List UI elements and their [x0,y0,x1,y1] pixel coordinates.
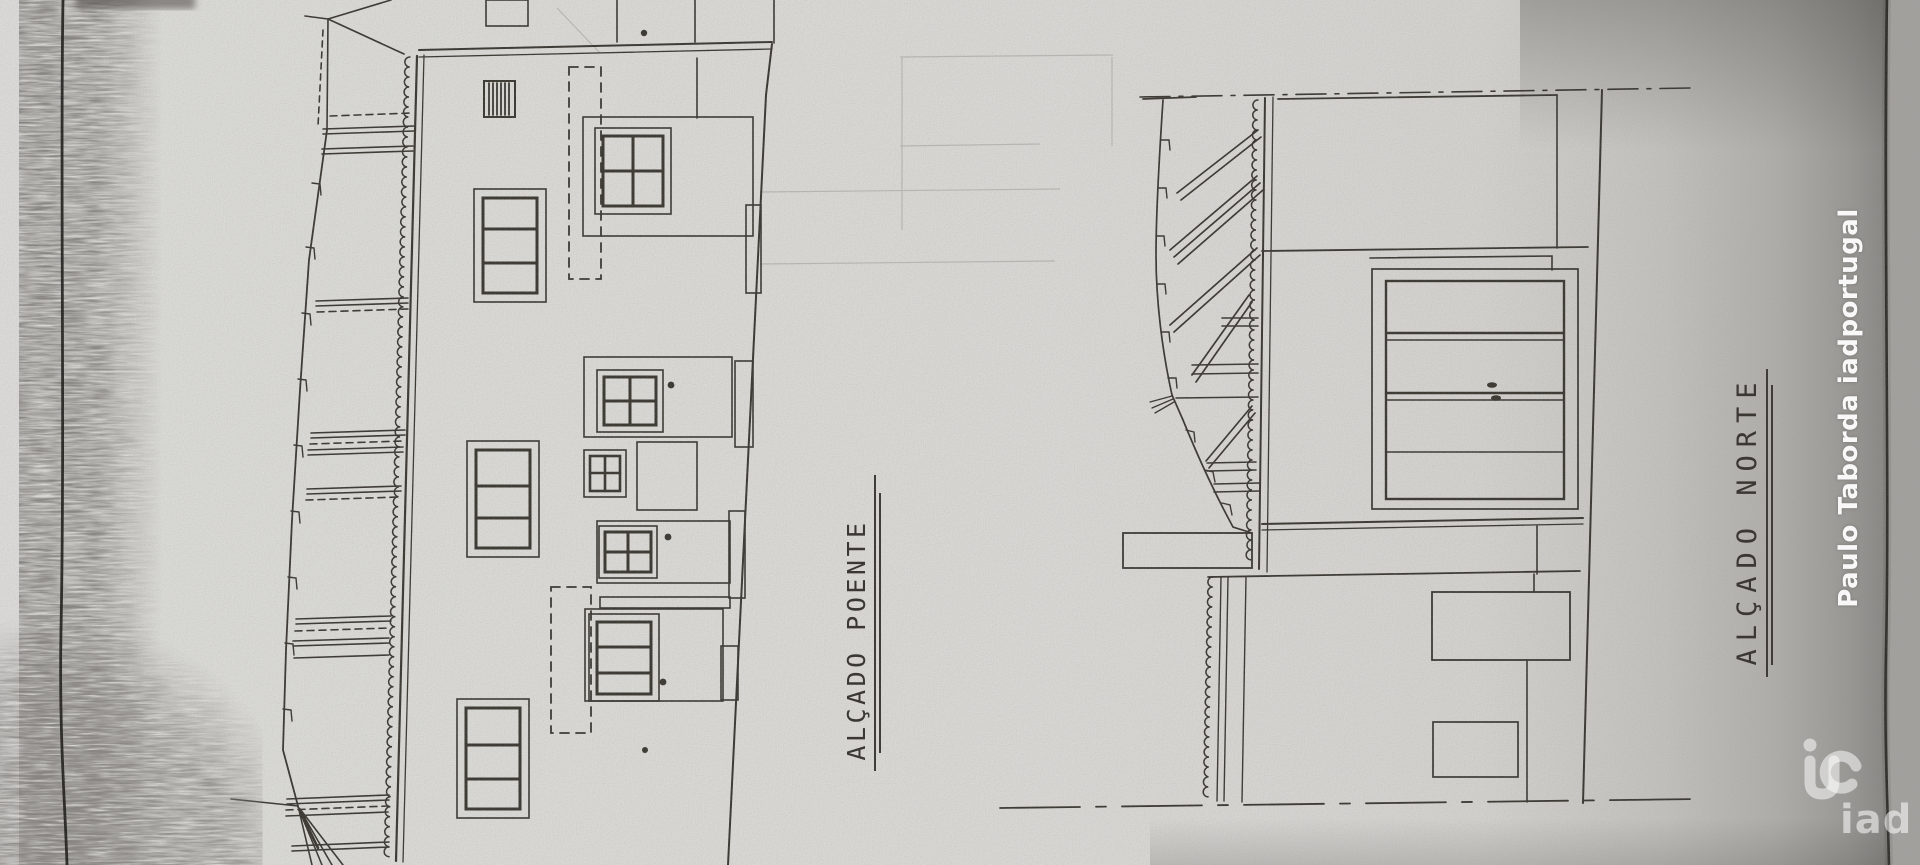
title-underline [874,475,876,771]
photo-architectural-plan: ALÇADO POENTE ALÇADO NORTE Paulo Taborda… [0,0,1920,865]
label-alcado-poente: ALÇADO POENTE [844,515,894,765]
plan-drawing-canvas [0,0,1920,865]
title-underline [1771,385,1773,665]
north-elevation-title: ALÇADO NORTE [1734,374,1761,665]
title-underline [879,493,881,753]
iad-monogram-icon [1796,736,1900,800]
label-alcado-norte: ALÇADO NORTE [1734,365,1786,675]
iad-logo: iad [1796,736,1920,862]
west-elevation-title: ALÇADO POENTE [844,519,869,760]
iad-wordmark: iad [1840,800,1912,840]
watermark-agent-name: Paulo Taborda iadportugal [1834,208,1868,608]
title-underline [1766,369,1768,677]
paper-edge-artifacts [0,0,1920,865]
